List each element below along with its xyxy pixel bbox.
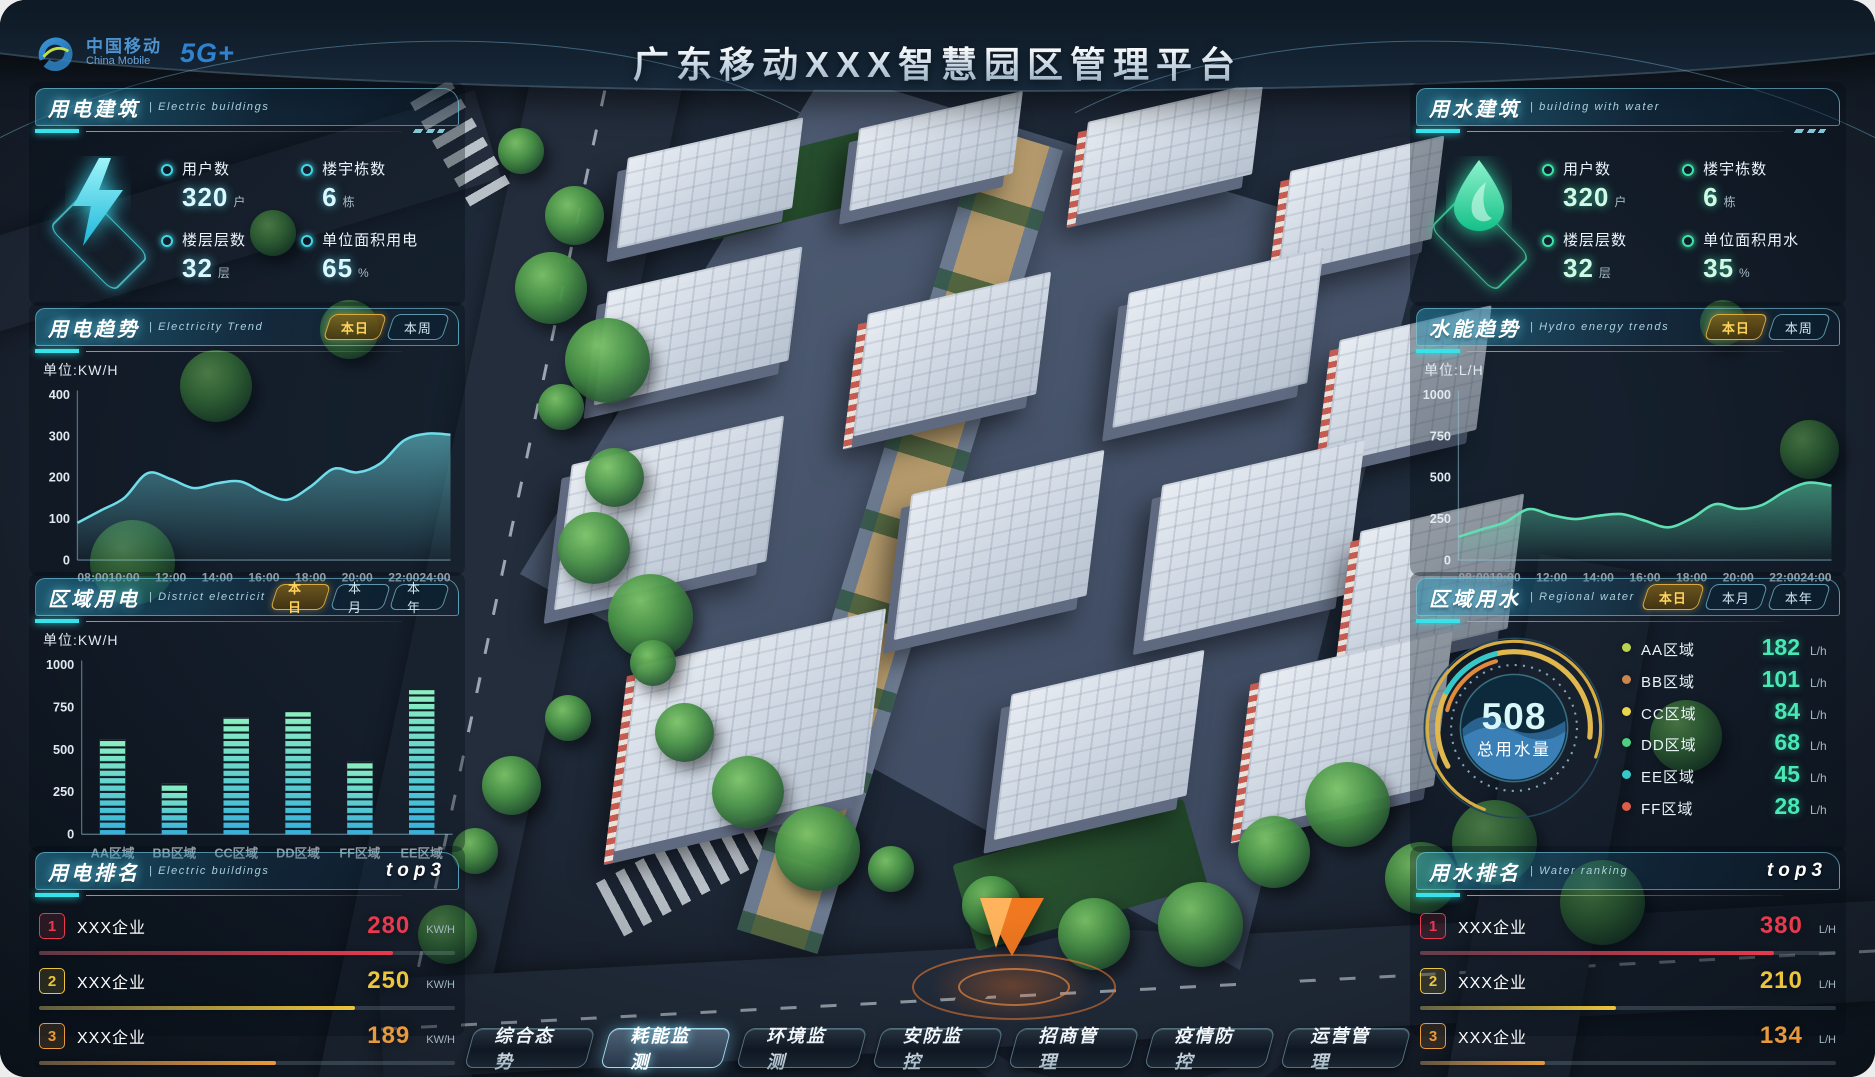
panel-water-building: 用水建筑 | building with water 用户数320户楼宇栋数6栋… (1416, 88, 1840, 300)
tree (558, 512, 630, 584)
tab-group: 本日本月本年 (1645, 584, 1827, 610)
bullet-icon (1682, 235, 1694, 247)
svg-text:300: 300 (49, 428, 70, 443)
stat-number: 6 (322, 182, 337, 212)
tab-group: 本日本周 (1708, 314, 1827, 340)
bullet-icon (161, 235, 173, 247)
gauge-label: 总用水量 (1477, 740, 1551, 759)
panel-title: 用电趋势 (48, 313, 140, 342)
tab-label: 本日 (288, 578, 313, 616)
tree (482, 756, 541, 815)
ranking-row: 3XXX企业189KW/H (39, 1019, 455, 1061)
stat-text: 楼层层数32层 (182, 229, 246, 284)
svg-text:250: 250 (1430, 511, 1451, 526)
stat-text: 单位面积用水35% (1703, 229, 1799, 284)
rank-name: XXX企业 (1458, 914, 1527, 938)
ranking-row: 1XXX企业380L/H (1420, 909, 1836, 951)
rank-bar-track (39, 1006, 455, 1010)
rank-unit: KW/H (426, 1034, 455, 1046)
electricity-trend-chart: 010020030040008:0010:0012:0014:0016:0018… (35, 382, 459, 590)
tab-label: 本日 (341, 318, 369, 337)
stat-label: 楼层层数 (1563, 229, 1627, 250)
stat-text: 用户数320户 (1563, 158, 1626, 213)
ranking-list: 1XXX企业380L/H2XXX企业210L/H3XXX企业134L/H (1416, 890, 1840, 1061)
panel-title: 区域用电 (48, 583, 140, 612)
legend-unit: L/h (1810, 739, 1838, 753)
panel-header: 用电趋势 | Electricity Trend 本日本周 (35, 308, 459, 346)
unit-label: 单位:KW/H (43, 630, 459, 650)
nav-tab-4[interactable]: 安防监控 (872, 1028, 1004, 1068)
tree (868, 846, 914, 892)
bullet-icon (1542, 235, 1554, 247)
panel-header: 用水建筑 | building with water (1416, 88, 1840, 126)
svg-text:200: 200 (49, 470, 70, 485)
legend-row: BB区域101L/h (1622, 666, 1838, 693)
rank-unit: KW/H (426, 979, 455, 991)
water-drop-icon (1420, 146, 1538, 296)
tree (515, 252, 587, 324)
stats-grid: 用户数320户楼宇栋数6栋楼层层数32层单位面积用电65% (161, 158, 457, 284)
tree (538, 384, 584, 430)
nav-tab-label: 运营管理 (1310, 1022, 1381, 1074)
dashboard-screen: 广东移动XXX智慧园区管理平台 中国移动 China Mobile 5G+ 用电… (0, 0, 1875, 1077)
stat-number: 32 (182, 253, 213, 283)
tree (1158, 882, 1243, 967)
panel-regional-water: 区域用水 | Regional water 本日本月本年 508 总用水量 (1416, 578, 1840, 846)
legend-unit: L/h (1810, 771, 1838, 785)
panel-electricity-trend: 用电趋势 | Electricity Trend 本日本周 单位:KW/H 01… (35, 308, 459, 570)
legend-value: 68 (1774, 729, 1800, 756)
svg-text:400: 400 (49, 387, 70, 402)
legend-dot-icon (1622, 802, 1631, 811)
stat-unit: 户 (1614, 195, 1626, 209)
panel-header: 用水排名 | Water ranking top3 (1416, 852, 1840, 890)
rank-unit: KW/H (426, 924, 455, 936)
panel-subtitle: | Electric buildings (149, 865, 269, 877)
stat-value: 320户 (182, 182, 245, 213)
page-title: 广东移动XXX智慧园区管理平台 (633, 36, 1242, 88)
stat-item: 楼宇栋数6栋 (1682, 158, 1838, 213)
svg-text:750: 750 (53, 699, 74, 714)
panel-subtitle: | Water ranking (1530, 865, 1628, 877)
stat-label: 用户数 (182, 158, 245, 179)
stat-label: 楼层层数 (182, 229, 246, 250)
stat-unit: 层 (218, 266, 230, 280)
tab-2[interactable]: 本月 (1704, 584, 1768, 610)
nav-tab-label: 招商管理 (1038, 1022, 1109, 1074)
tree (655, 703, 714, 762)
nav-tab-7[interactable]: 运营管理 (1280, 1028, 1412, 1068)
tree (545, 186, 604, 245)
hydro-trend-chart: 0250500750100008:0010:0012:0014:0016:001… (1416, 382, 1840, 590)
legend-dot-icon (1622, 770, 1631, 779)
legend-row: DD区域68L/h (1622, 729, 1838, 756)
district-electricity-chart: 02505007501000AA区域BB区域CC区域DD区域FF区域EE区域 (35, 652, 459, 866)
stat-label: 用户数 (1563, 158, 1626, 179)
svg-text:0: 0 (1444, 552, 1451, 567)
tree (775, 806, 860, 891)
legend-name: EE区域 (1641, 766, 1695, 787)
tree (498, 128, 544, 174)
legend-dot-icon (1622, 675, 1631, 684)
unit-label: 单位:KW/H (43, 360, 459, 380)
stat-unit: 户 (233, 195, 245, 209)
rank-bar-fill (1420, 951, 1774, 955)
bullet-icon (1682, 164, 1694, 176)
tab-label: 本月 (1722, 588, 1750, 607)
tab-label: 本周 (1785, 318, 1813, 337)
stat-item: 用户数320户 (1542, 158, 1674, 213)
bullet-icon (301, 164, 313, 176)
stat-item: 楼宇栋数6栋 (301, 158, 457, 213)
legend-dot-icon (1622, 643, 1631, 652)
tab-2[interactable]: 本月 (330, 584, 391, 610)
panel-title: 区域用水 (1429, 583, 1521, 612)
stat-text: 楼宇栋数6栋 (322, 158, 386, 213)
stat-number: 35 (1703, 253, 1734, 283)
tab-1[interactable]: 本日 (270, 584, 331, 610)
tab-1[interactable]: 本日 (1641, 584, 1705, 610)
stat-unit: 栋 (343, 195, 355, 209)
rank-name: XXX企业 (1458, 1024, 1527, 1048)
marker-arrow-icon (980, 898, 1044, 988)
legend-name: CC区域 (1641, 703, 1697, 724)
panel-header: 区域用水 | Regional water 本日本月本年 (1416, 578, 1840, 616)
stat-number: 320 (1563, 182, 1609, 212)
stat-value: 32层 (1563, 253, 1627, 284)
tab-label: 本周 (404, 318, 432, 337)
tab-2[interactable]: 本周 (386, 314, 450, 340)
ranking-row: 2XXX企业250KW/H (39, 964, 455, 1006)
legend-dot-icon (1622, 707, 1631, 716)
tree (545, 695, 591, 741)
tree (1305, 762, 1390, 847)
rank-badge: 3 (1420, 1023, 1446, 1049)
water-legend: AA区域182L/hBB区域101L/hCC区域84L/hDD区域68L/hEE… (1622, 630, 1840, 826)
rank-badge: 1 (1420, 913, 1446, 939)
stat-label: 单位面积用电 (322, 229, 418, 250)
rank-unit: L/H (1819, 1034, 1836, 1046)
panel-subtitle: | Regional water (1530, 591, 1635, 603)
rank-name: XXX企业 (1458, 969, 1527, 993)
rank-bar-track (1420, 1061, 1836, 1065)
logo-name-cn: 中国移动 (86, 38, 162, 56)
stat-number: 32 (1563, 253, 1594, 283)
panel-title: 用电排名 (48, 857, 140, 886)
stat-label: 单位面积用水 (1703, 229, 1799, 250)
panel-district-electricity: 区域用电 | District electricity 本日本月本年 单位:KW… (35, 578, 459, 846)
stat-number: 6 (1703, 182, 1718, 212)
location-marker[interactable] (952, 898, 1072, 1008)
svg-text:1000: 1000 (1423, 387, 1451, 402)
stat-number: 65 (322, 253, 353, 283)
ranking-row: 2XXX企业210L/H (1420, 964, 1836, 1006)
legend-name: FF区域 (1641, 798, 1693, 819)
rank-unit: L/H (1819, 979, 1836, 991)
panel-electric-ranking: 用电排名 | Electric buildings top3 1XXX企业280… (35, 852, 459, 1030)
stat-value: 320户 (1563, 182, 1626, 213)
panel-title: 用电建筑 (48, 93, 140, 122)
legend-unit: L/h (1810, 644, 1838, 658)
tab-group: 本日本周 (327, 314, 446, 340)
tab-3[interactable]: 本年 (389, 584, 450, 610)
legend-name: BB区域 (1641, 671, 1695, 692)
water-gauge: 508 总用水量 (1416, 630, 1612, 826)
nav-tab-3[interactable]: 环境监测 (736, 1028, 868, 1068)
stat-unit: 栋 (1724, 195, 1736, 209)
ranking-row: 1XXX企业280KW/H (39, 909, 455, 951)
tab-3[interactable]: 本年 (1767, 584, 1831, 610)
panel-hydro-trend: 水能趋势 | Hydro energy trends 本日本周 单位:L/H 0… (1416, 308, 1840, 570)
rank-name: XXX企业 (77, 914, 146, 938)
nav-tab-label: 综合态势 (494, 1022, 565, 1074)
nav-tab-label: 疫情防控 (1174, 1022, 1245, 1074)
rank-bar-track (39, 1061, 455, 1065)
ranking-row: 3XXX企业134L/H (1420, 1019, 1836, 1061)
nav-tab-6[interactable]: 疫情防控 (1144, 1028, 1276, 1068)
rank-bar-fill (39, 951, 393, 955)
stat-label: 楼宇栋数 (1703, 158, 1767, 179)
svg-text:1000: 1000 (46, 657, 74, 672)
panel-title: 用水排名 (1429, 857, 1521, 886)
tree (585, 448, 644, 507)
stat-value: 32层 (182, 253, 246, 284)
legend-unit: L/h (1810, 676, 1838, 690)
panel-electric-building: 用电建筑 | Electric buildings 用户数320户楼宇栋数6栋楼… (35, 88, 459, 300)
svg-text:0: 0 (63, 552, 70, 567)
svg-text:750: 750 (1430, 428, 1451, 443)
stat-unit: 层 (1599, 266, 1611, 280)
nav-tab-label: 安防监控 (902, 1022, 973, 1074)
ranking-list: 1XXX企业280KW/H2XXX企业250KW/H3XXX企业189KW/H (35, 890, 459, 1061)
stat-text: 楼宇栋数6栋 (1703, 158, 1767, 213)
tab-1[interactable]: 本日 (1704, 314, 1768, 340)
gauge-total: 508 (1481, 695, 1546, 737)
stat-unit: % (358, 266, 369, 280)
nav-tab-label: 耗能监测 (630, 1022, 701, 1074)
tab-2[interactable]: 本周 (1767, 314, 1831, 340)
rank-badge: 2 (39, 968, 65, 994)
legend-value: 84 (1774, 698, 1800, 725)
legend-unit: L/h (1810, 708, 1838, 722)
panel-water-ranking: 用水排名 | Water ranking top3 1XXX企业380L/H2X… (1416, 852, 1840, 1030)
stat-item: 楼层层数32层 (161, 229, 293, 284)
panel-subtitle: | District electricity (149, 591, 265, 603)
bullet-icon (161, 164, 173, 176)
legend-name: DD区域 (1641, 734, 1697, 755)
tree (1238, 816, 1310, 888)
panel-subtitle: | Hydro energy trends (1530, 321, 1669, 333)
nav-tab-2[interactable]: 耗能监测 (599, 1028, 731, 1068)
tab-label: 本月 (348, 578, 373, 616)
stat-text: 楼层层数32层 (1563, 229, 1627, 284)
stat-item: 楼层层数32层 (1542, 229, 1674, 284)
tree (712, 756, 784, 828)
china-mobile-logo-icon (34, 32, 76, 74)
stat-value: 6栋 (1703, 182, 1767, 213)
panel-header: 水能趋势 | Hydro energy trends 本日本周 (1416, 308, 1840, 346)
legend-unit: L/h (1810, 803, 1838, 817)
tab-label: 本日 (1659, 588, 1687, 607)
rank-name: XXX企业 (77, 969, 146, 993)
stat-number: 320 (182, 182, 228, 212)
bullet-icon (301, 235, 313, 247)
panel-header: 用电建筑 | Electric buildings (35, 88, 459, 126)
legend-dot-icon (1622, 738, 1631, 747)
svg-text:250: 250 (53, 784, 74, 799)
top3-badge: top3 (1767, 860, 1827, 882)
rank-name: XXX企业 (77, 1024, 146, 1048)
rank-value: 250 (367, 967, 410, 995)
bullet-icon (1542, 164, 1554, 176)
svg-text:500: 500 (53, 742, 74, 757)
panel-title: 水能趋势 (1429, 313, 1521, 342)
stat-value: 6栋 (322, 182, 386, 213)
rank-bar-fill (39, 1061, 276, 1065)
rank-bar-fill (1420, 1061, 1545, 1065)
nav-tab-1[interactable]: 综合态势 (463, 1028, 595, 1068)
rank-badge: 3 (39, 1023, 65, 1049)
panel-subtitle: | Electric buildings (149, 101, 269, 113)
legend-value: 28 (1774, 793, 1800, 820)
legend-value: 182 (1762, 634, 1800, 661)
tab-label: 本年 (407, 578, 432, 616)
rank-bar-fill (1420, 1006, 1616, 1010)
logo-name-en: China Mobile (86, 56, 162, 68)
stat-label: 楼宇栋数 (322, 158, 386, 179)
rank-badge: 2 (1420, 968, 1446, 994)
stat-value: 35% (1703, 253, 1799, 284)
legend-value: 45 (1774, 761, 1800, 788)
stat-unit: % (1739, 266, 1750, 280)
legend-row: AA区域182L/h (1622, 634, 1838, 661)
nav-tab-5[interactable]: 招商管理 (1008, 1028, 1140, 1068)
rank-value: 380 (1760, 912, 1803, 940)
legend-row: CC区域84L/h (1622, 698, 1838, 725)
panel-header: 区域用电 | District electricity 本日本月本年 (35, 578, 459, 616)
legend-value: 101 (1762, 666, 1800, 693)
rank-bar-track (1420, 1006, 1836, 1010)
nav-tab-label: 环境监测 (766, 1022, 837, 1074)
legend-name: AA区域 (1641, 639, 1695, 660)
rank-bar-fill (39, 1006, 355, 1010)
top3-badge: top3 (386, 860, 446, 882)
svg-text:100: 100 (49, 511, 70, 526)
rank-badge: 1 (39, 913, 65, 939)
stat-text: 用户数320户 (182, 158, 245, 213)
tab-group: 本日本月本年 (274, 584, 446, 610)
stat-value: 65% (322, 253, 418, 284)
panel-title: 用水建筑 (1429, 93, 1521, 122)
tab-label: 本日 (1722, 318, 1750, 337)
rank-value: 280 (367, 912, 410, 940)
rank-bar-track (39, 951, 455, 955)
china-mobile-logo: 中国移动 China Mobile 5G+ (34, 32, 235, 74)
stat-text: 单位面积用电65% (322, 229, 418, 284)
tab-1[interactable]: 本日 (323, 314, 387, 340)
stat-item: 用户数320户 (161, 158, 293, 213)
unit-label: 单位:L/H (1424, 360, 1840, 380)
stat-item: 单位面积用电65% (301, 229, 457, 284)
lightning-icon (39, 146, 157, 296)
panel-subtitle: | Electricity Trend (149, 321, 263, 333)
rank-unit: L/H (1819, 924, 1836, 936)
svg-text:0: 0 (67, 827, 74, 842)
rank-value: 134 (1760, 1022, 1803, 1050)
tree (630, 640, 676, 686)
5g-badge: 5G+ (180, 38, 235, 69)
panel-subtitle: | building with water (1530, 101, 1660, 113)
stat-item: 单位面积用水35% (1682, 229, 1838, 284)
tab-label: 本年 (1785, 588, 1813, 607)
panel-header: 用电排名 | Electric buildings top3 (35, 852, 459, 890)
bottom-nav: 综合态势耗能监测环境监测安防监控招商管理疫情防控运营管理 (469, 1028, 1407, 1068)
svg-text:500: 500 (1430, 470, 1451, 485)
rank-bar-track (1420, 951, 1836, 955)
rank-value: 189 (367, 1022, 410, 1050)
legend-row: EE区域45L/h (1622, 761, 1838, 788)
legend-row: FF区域28L/h (1622, 793, 1838, 820)
rank-value: 210 (1760, 967, 1803, 995)
stats-grid: 用户数320户楼宇栋数6栋楼层层数32层单位面积用水35% (1542, 158, 1838, 284)
